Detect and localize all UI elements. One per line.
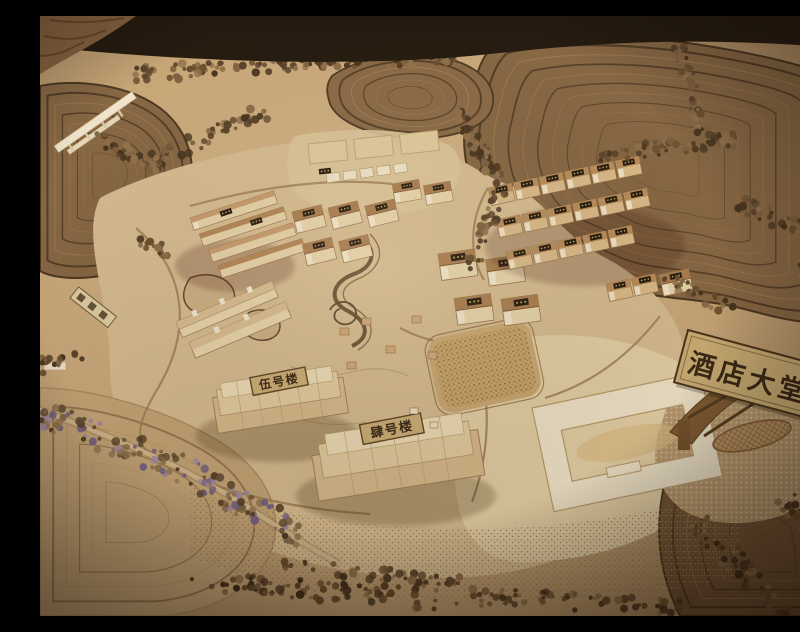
vignette-overlay: [40, 16, 800, 616]
scale-model-photo: 伍号楼 肆号楼: [40, 16, 800, 616]
model-scene: 伍号楼 肆号楼: [40, 16, 800, 616]
